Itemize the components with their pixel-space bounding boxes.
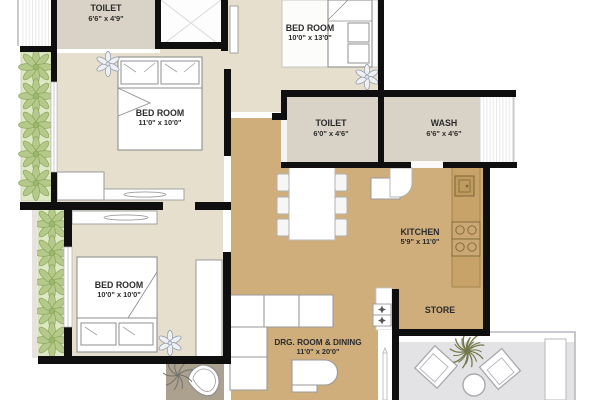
svg-text:6'6" x 4'9": 6'6" x 4'9" [88,14,124,23]
svg-text:5'9" x 11'0": 5'9" x 11'0" [401,237,440,246]
svg-text:DRG. ROOM & DINING: DRG. ROOM & DINING [274,338,361,347]
svg-text:10'0" x 10'0": 10'0" x 10'0" [97,290,141,299]
svg-text:STORE: STORE [425,305,455,315]
svg-text:BED ROOM: BED ROOM [136,108,184,118]
svg-text:10'0" x 13'0": 10'0" x 13'0" [288,33,332,42]
svg-text:11'0" x 20'0": 11'0" x 20'0" [297,347,340,356]
svg-text:6'6" x 4'6": 6'6" x 4'6" [426,129,462,138]
svg-text:KITCHEN: KITCHEN [400,227,439,237]
svg-text:BED ROOM: BED ROOM [95,280,143,290]
svg-text:WASH: WASH [431,118,457,128]
svg-text:6'0" x 4'6": 6'0" x 4'6" [313,129,349,138]
svg-text:TOILET: TOILET [90,3,122,13]
svg-text:TOILET: TOILET [315,118,347,128]
svg-text:BED ROOM: BED ROOM [286,23,334,33]
svg-text:11'0" x 10'0": 11'0" x 10'0" [139,118,182,127]
